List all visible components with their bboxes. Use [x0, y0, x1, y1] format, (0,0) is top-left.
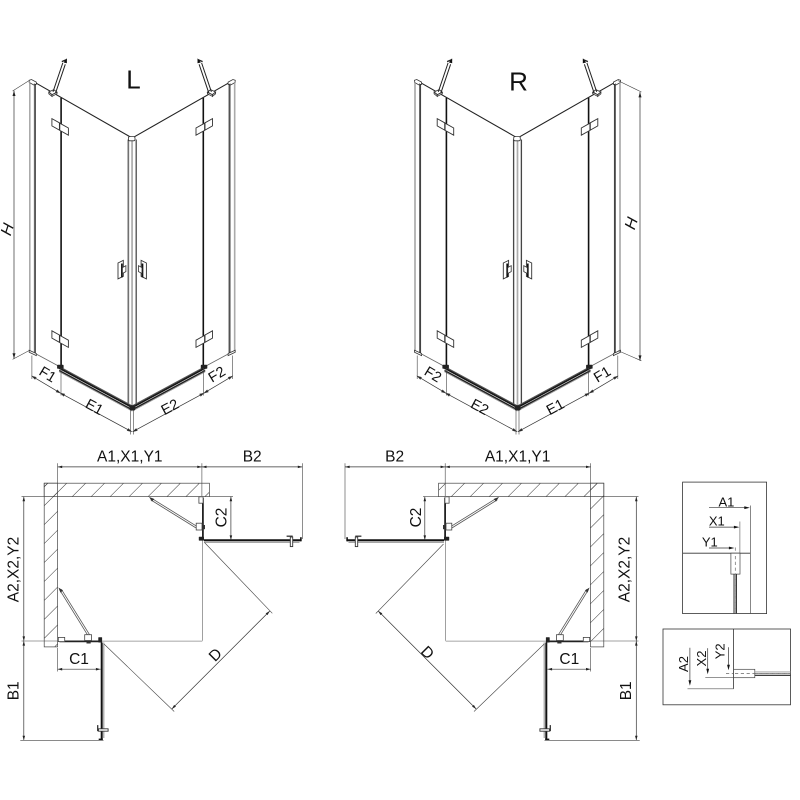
svg-text:R: R: [509, 67, 528, 97]
svg-text:A2,X2,Y2: A2,X2,Y2: [617, 537, 634, 603]
svg-text:B1: B1: [618, 681, 635, 700]
svg-text:C1: C1: [69, 651, 89, 668]
svg-text:B2: B2: [385, 448, 404, 465]
svg-text:A1,X1,Y1: A1,X1,Y1: [97, 448, 163, 465]
svg-text:C1: C1: [559, 651, 579, 668]
svg-text:X1: X1: [709, 514, 725, 529]
svg-text:A2,X2,Y2: A2,X2,Y2: [6, 537, 23, 603]
svg-text:A2: A2: [676, 656, 691, 672]
svg-text:C2: C2: [214, 508, 231, 528]
svg-text:X2: X2: [694, 651, 709, 667]
svg-text:C2: C2: [408, 508, 425, 528]
svg-text:B1: B1: [6, 681, 23, 700]
svg-text:Y1: Y1: [702, 535, 718, 550]
svg-text:A1: A1: [718, 494, 734, 509]
svg-text:A1,X1,Y1: A1,X1,Y1: [485, 448, 551, 465]
svg-text:Y2: Y2: [713, 643, 728, 659]
svg-text:B2: B2: [243, 448, 262, 465]
svg-text:L: L: [126, 65, 140, 95]
